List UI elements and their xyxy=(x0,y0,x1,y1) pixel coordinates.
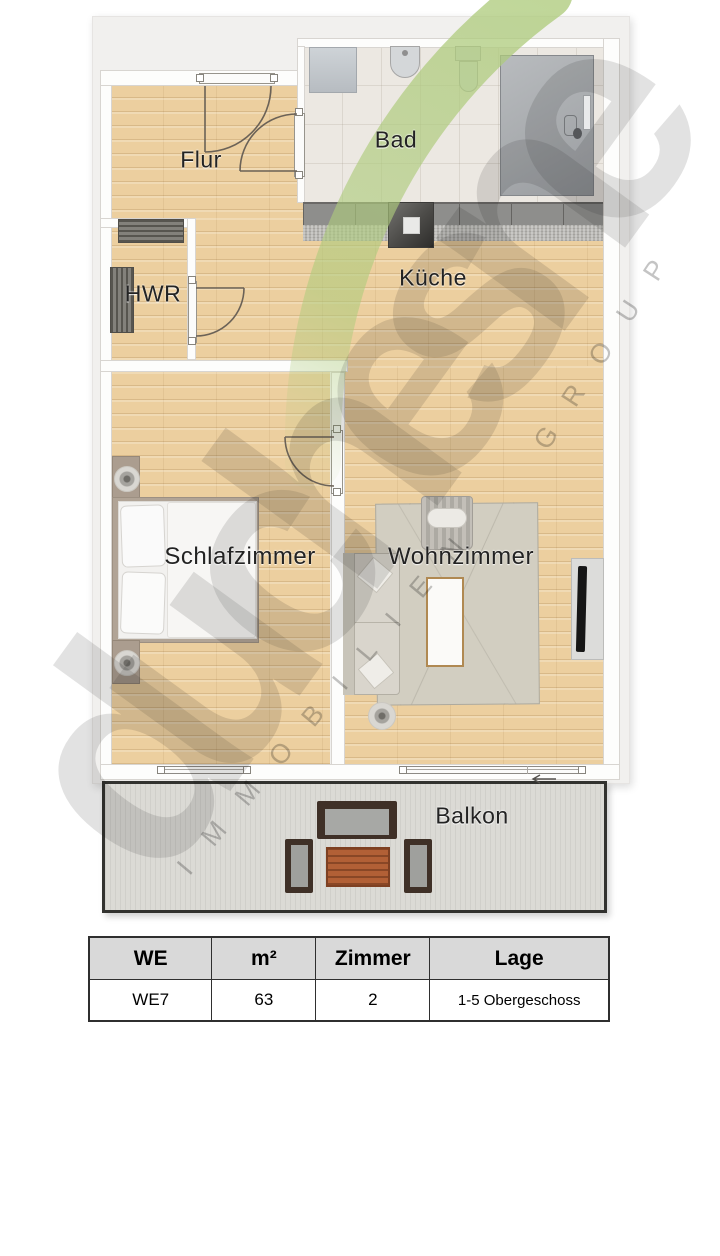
room-label-flur: Flur xyxy=(180,147,222,174)
room-label-hwr: HWR xyxy=(125,281,181,308)
door-cap xyxy=(196,74,204,82)
window-divider xyxy=(527,766,528,774)
window-cap xyxy=(243,766,251,774)
toilet-bowl xyxy=(459,61,478,92)
bed-pillow-1 xyxy=(120,504,166,567)
room-label-wohnzimmer: Wohnzimmer xyxy=(388,543,534,571)
sofa-seat-divider xyxy=(355,622,400,623)
door-cap xyxy=(295,108,303,116)
wall-outer-right xyxy=(603,38,620,780)
window-cap xyxy=(157,766,165,774)
cell-zimmer: 2 xyxy=(316,980,430,1022)
hwr-door-frame xyxy=(188,281,197,343)
header-we: WE xyxy=(89,937,212,980)
door-cap xyxy=(270,74,278,82)
door-cap xyxy=(333,488,341,496)
window-glass-line xyxy=(164,769,244,770)
header-lage: Lage xyxy=(430,937,609,980)
floor-lamp xyxy=(368,702,396,730)
balcony-chair-right-cushion xyxy=(410,845,427,887)
balcony-table xyxy=(326,847,390,887)
door-cap xyxy=(295,171,303,179)
door-cap xyxy=(188,337,196,345)
window-cap xyxy=(578,766,586,774)
table-lamp-top xyxy=(114,466,140,492)
window-glass-line xyxy=(406,769,579,770)
balcony-bench-cushion xyxy=(325,809,389,835)
room-label-schlafzimmer: Schlafzimmer xyxy=(164,543,315,571)
floorplan-page: { "plan": { "rooms": [ {"id":"flur","lab… xyxy=(0,0,720,1040)
wohnzimmer-window xyxy=(402,766,583,774)
door-cap xyxy=(333,425,341,433)
wall-outer-left xyxy=(100,70,112,780)
table-data-row: WE7 63 2 1-5 Obergeschoss xyxy=(89,980,609,1022)
shower xyxy=(500,55,594,196)
table-header-row: WE m² Zimmer Lage xyxy=(89,937,609,980)
cell-m2: 63 xyxy=(212,980,316,1022)
cell-we: WE7 xyxy=(89,980,212,1022)
coffee-table xyxy=(426,577,464,667)
room-label-bad: Bad xyxy=(375,127,417,154)
door-cap xyxy=(188,276,196,284)
cell-lage: 1-5 Obergeschoss xyxy=(430,980,609,1022)
balcony-chair-left-cushion xyxy=(291,845,308,887)
table-lamp-bottom xyxy=(114,650,140,676)
toilet-tank xyxy=(455,46,481,61)
sofa-backrest xyxy=(343,553,355,695)
kitchen-counter-front xyxy=(303,225,603,241)
room-label-kueche: Küche xyxy=(399,265,467,292)
schlafzimmer-window xyxy=(160,766,248,774)
unit-info-table: WE m² Zimmer Lage WE7 63 2 1-5 Obergesch… xyxy=(88,936,610,1022)
bad-door-frame xyxy=(294,113,305,177)
entrance-door-frame xyxy=(199,73,275,84)
kitchen-counter-back xyxy=(303,202,603,225)
bed-pillow-2 xyxy=(120,571,166,634)
header-zimmer: Zimmer xyxy=(316,937,430,980)
shower-fitting xyxy=(583,95,591,130)
washing-machine xyxy=(309,47,357,93)
room-label-balkon: Balkon xyxy=(435,803,508,830)
sink-faucet xyxy=(402,50,408,56)
window-cap xyxy=(399,766,407,774)
hwr-shelf-top xyxy=(118,219,184,243)
armchair-cushion xyxy=(427,508,467,528)
shower-knob xyxy=(573,128,582,139)
stove-sink-center xyxy=(403,217,420,234)
schlafzimmer-door-frame xyxy=(331,430,343,494)
wall-schlafzimmer-top xyxy=(100,360,348,372)
header-m2: m² xyxy=(212,937,316,980)
